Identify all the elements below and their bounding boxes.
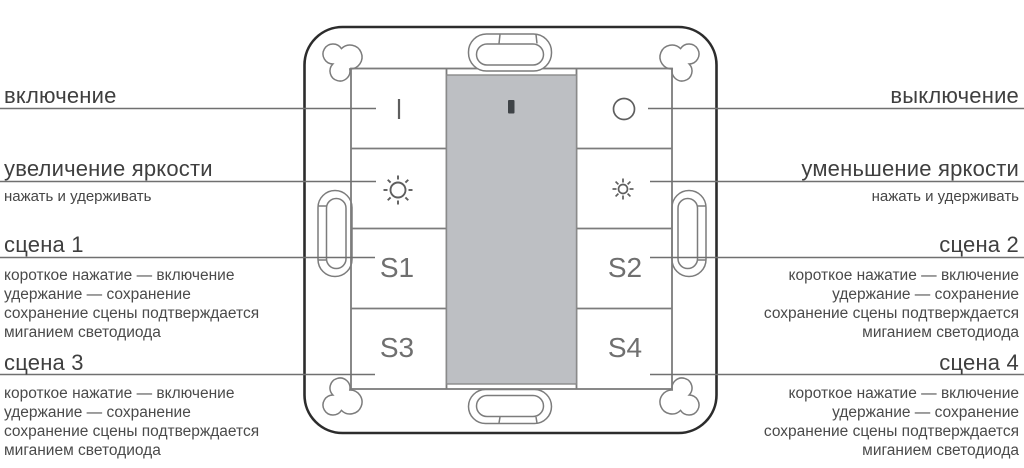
desc-line: короткое нажатие — включение — [689, 266, 1019, 285]
desc-line: удержание — сохранение — [689, 403, 1019, 422]
button-brightness-down — [577, 149, 673, 229]
label-scene-3: сцена 3 — [4, 351, 334, 375]
label-scene-3-desc: короткое нажатие — включение удержание —… — [4, 384, 334, 460]
button-label-s3: S3 — [380, 332, 414, 363]
clip-tab-bottom-icon — [469, 390, 552, 424]
clip-tab-top-icon — [469, 34, 552, 71]
button-label-s2: S2 — [608, 252, 642, 283]
desc-line: удержание — сохранение — [689, 285, 1019, 304]
desc-line: короткое нажатие — включение — [689, 384, 1019, 403]
label-scene-1: сцена 1 — [4, 233, 334, 257]
desc-line: короткое нажатие — включение — [4, 266, 334, 285]
label-brightness-down-hint: нажать и удерживать — [689, 188, 1019, 206]
label-scene-2: сцена 2 — [689, 233, 1019, 257]
desc-line: короткое нажатие — включение — [4, 384, 334, 403]
center-module — [447, 75, 577, 384]
label-scene-4: сцена 4 — [689, 351, 1019, 375]
label-scene-2-desc: короткое нажатие — включение удержание —… — [689, 266, 1019, 342]
label-brightness-up-hint: нажать и удерживать — [4, 188, 334, 206]
label-off: выключение — [689, 84, 1019, 108]
label-brightness-up: увеличение яркости — [4, 157, 334, 181]
desc-line: миганием светодиода — [689, 441, 1019, 460]
label-scene-4-desc: короткое нажатие — включение удержание —… — [689, 384, 1019, 460]
switch-diagram: S1 S2 S3 S4 включение у — [0, 0, 1024, 468]
label-scene-1-desc: короткое нажатие — включение удержание —… — [4, 266, 334, 342]
label-brightness-down: уменьшение яркости — [689, 157, 1019, 181]
desc-line: миганием светодиода — [4, 441, 334, 460]
led-indicator — [508, 100, 515, 114]
desc-line: сохранение сцены подтверждается — [689, 304, 1019, 323]
desc-line: удержание — сохранение — [4, 285, 334, 304]
button-brightness-up — [351, 149, 447, 229]
button-label-s1: S1 — [380, 252, 414, 283]
desc-line: удержание — сохранение — [4, 403, 334, 422]
desc-line: сохранение сцены подтверждается — [689, 422, 1019, 441]
desc-line: миганием светодиода — [689, 323, 1019, 342]
desc-line: сохранение сцены подтверждается — [4, 422, 334, 441]
label-on: включение — [4, 84, 334, 108]
desc-line: миганием светодиода — [4, 323, 334, 342]
button-label-s4: S4 — [608, 332, 642, 363]
desc-line: сохранение сцены подтверждается — [4, 304, 334, 323]
